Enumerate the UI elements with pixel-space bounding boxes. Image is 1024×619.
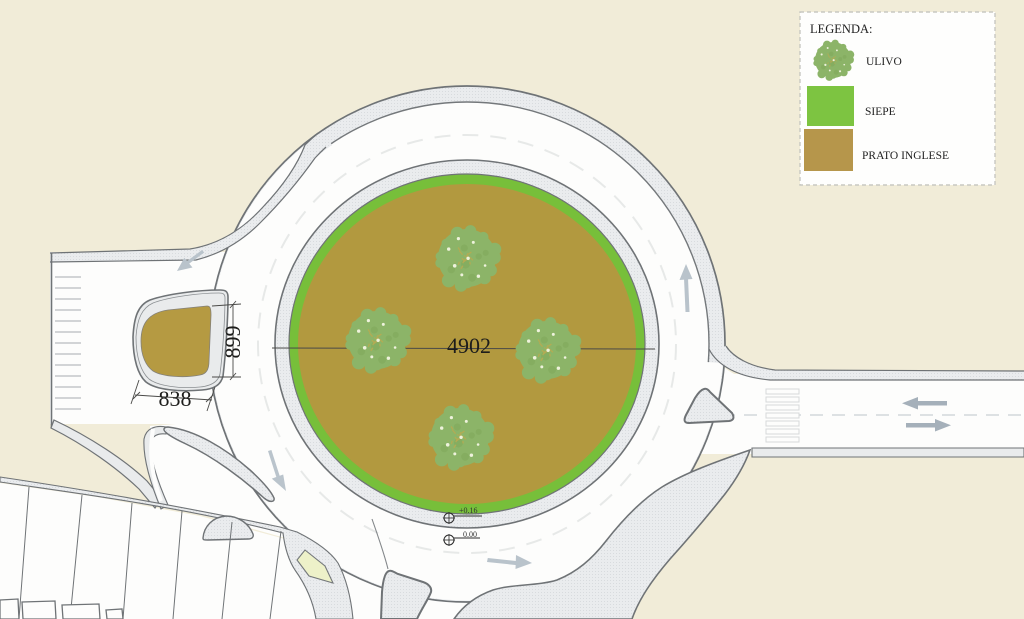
svg-text:ULIVO: ULIVO	[866, 56, 902, 68]
svg-text:838: 838	[159, 386, 192, 411]
svg-text:0.00: 0.00	[463, 530, 477, 539]
svg-text:+0.16: +0.16	[459, 506, 478, 515]
svg-text:LEGENDA:: LEGENDA:	[810, 22, 873, 36]
svg-text:SIEPE: SIEPE	[865, 106, 896, 118]
svg-text:4902: 4902	[447, 333, 491, 358]
svg-text:PRATO INGLESE: PRATO INGLESE	[862, 150, 949, 162]
svg-text:899: 899	[220, 326, 245, 359]
